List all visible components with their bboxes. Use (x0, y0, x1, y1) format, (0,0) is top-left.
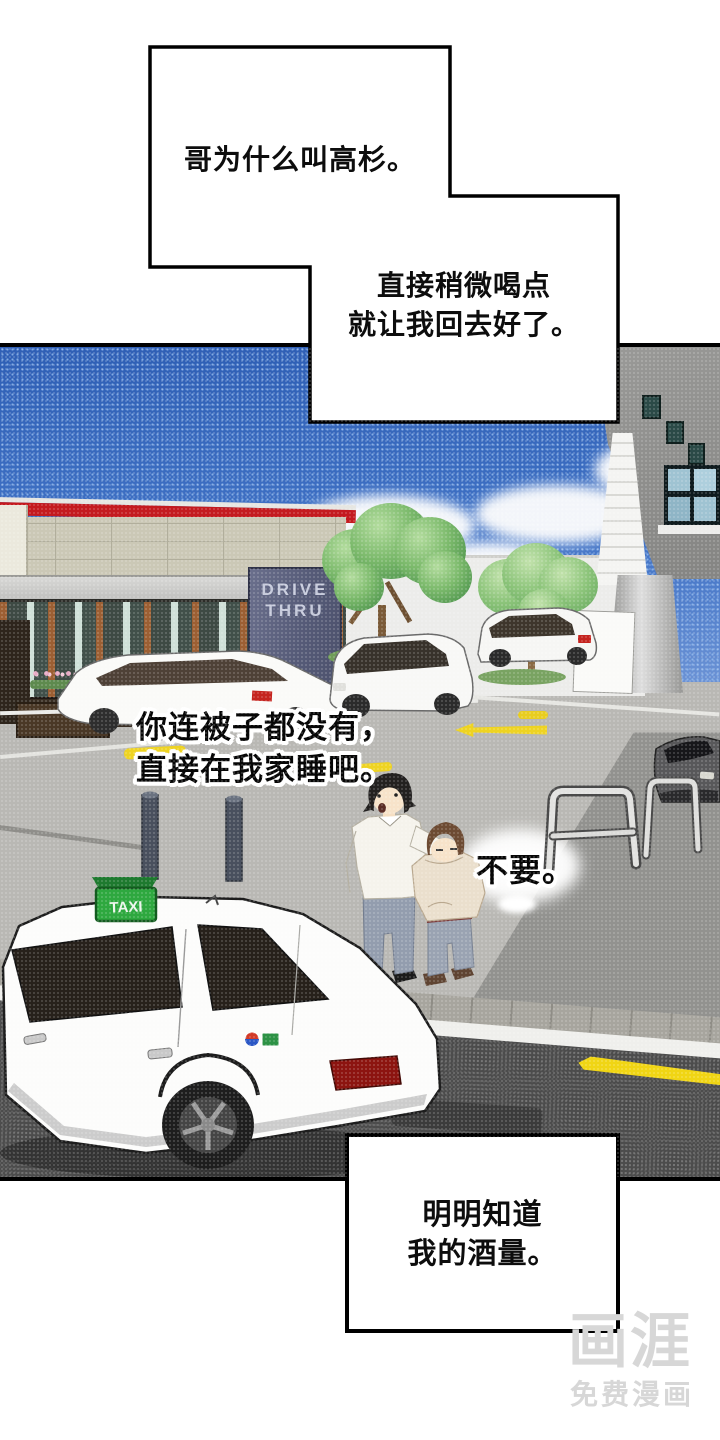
watermark-tagline: 免费漫画 (570, 1381, 694, 1409)
short-character-pants (428, 914, 474, 976)
parked-car-right (478, 608, 596, 667)
speech-box-2-line2: 就让我回去好了。 (310, 305, 618, 344)
watermark-logo-text: 画涯 (568, 1308, 692, 1375)
taxi-sticker (245, 1032, 279, 1046)
comic-page: DRIVE THRU (0, 0, 720, 1440)
speech-box-union (0, 0, 720, 470)
taxi-taillight (330, 1056, 401, 1090)
speech-box-2-line1: 直接稍微喝点 (310, 266, 618, 305)
speech-box-1-text: 哥为什么叫高杉。 (150, 140, 450, 179)
watermark-tagline-text: 免费漫画 (570, 1379, 694, 1410)
dark-car-right-edge (654, 737, 720, 802)
speech-box-2-text: 直接稍微喝点 就让我回去好了。 (310, 266, 618, 344)
watermark-logo: 画涯 (568, 1312, 692, 1372)
shout-speech-2-text: 不要。 (476, 852, 575, 888)
parked-car-center (330, 634, 473, 718)
shout-speech-1: 你连被子都没有， 直接在我家睡吧。 (136, 707, 392, 791)
speech-box-3-line1: 明明知道 (345, 1196, 620, 1235)
shout-speech-1-line2: 直接在我家睡吧。 (136, 749, 392, 791)
shout-speech-2: 不要。 (476, 845, 575, 891)
speech-box-1-line: 哥为什么叫高杉。 (184, 144, 416, 175)
bollard (142, 792, 158, 880)
bollard (226, 796, 242, 882)
taxi-sign-text: TAXI (109, 898, 143, 916)
speech-box-3-line2: 我的酒量。 (345, 1235, 620, 1274)
speech-box-shape (150, 47, 618, 422)
shout-speech-1-line1: 你连被子都没有， (136, 707, 392, 749)
speech-box-3-text: 明明知道 我的酒量。 (345, 1196, 620, 1274)
